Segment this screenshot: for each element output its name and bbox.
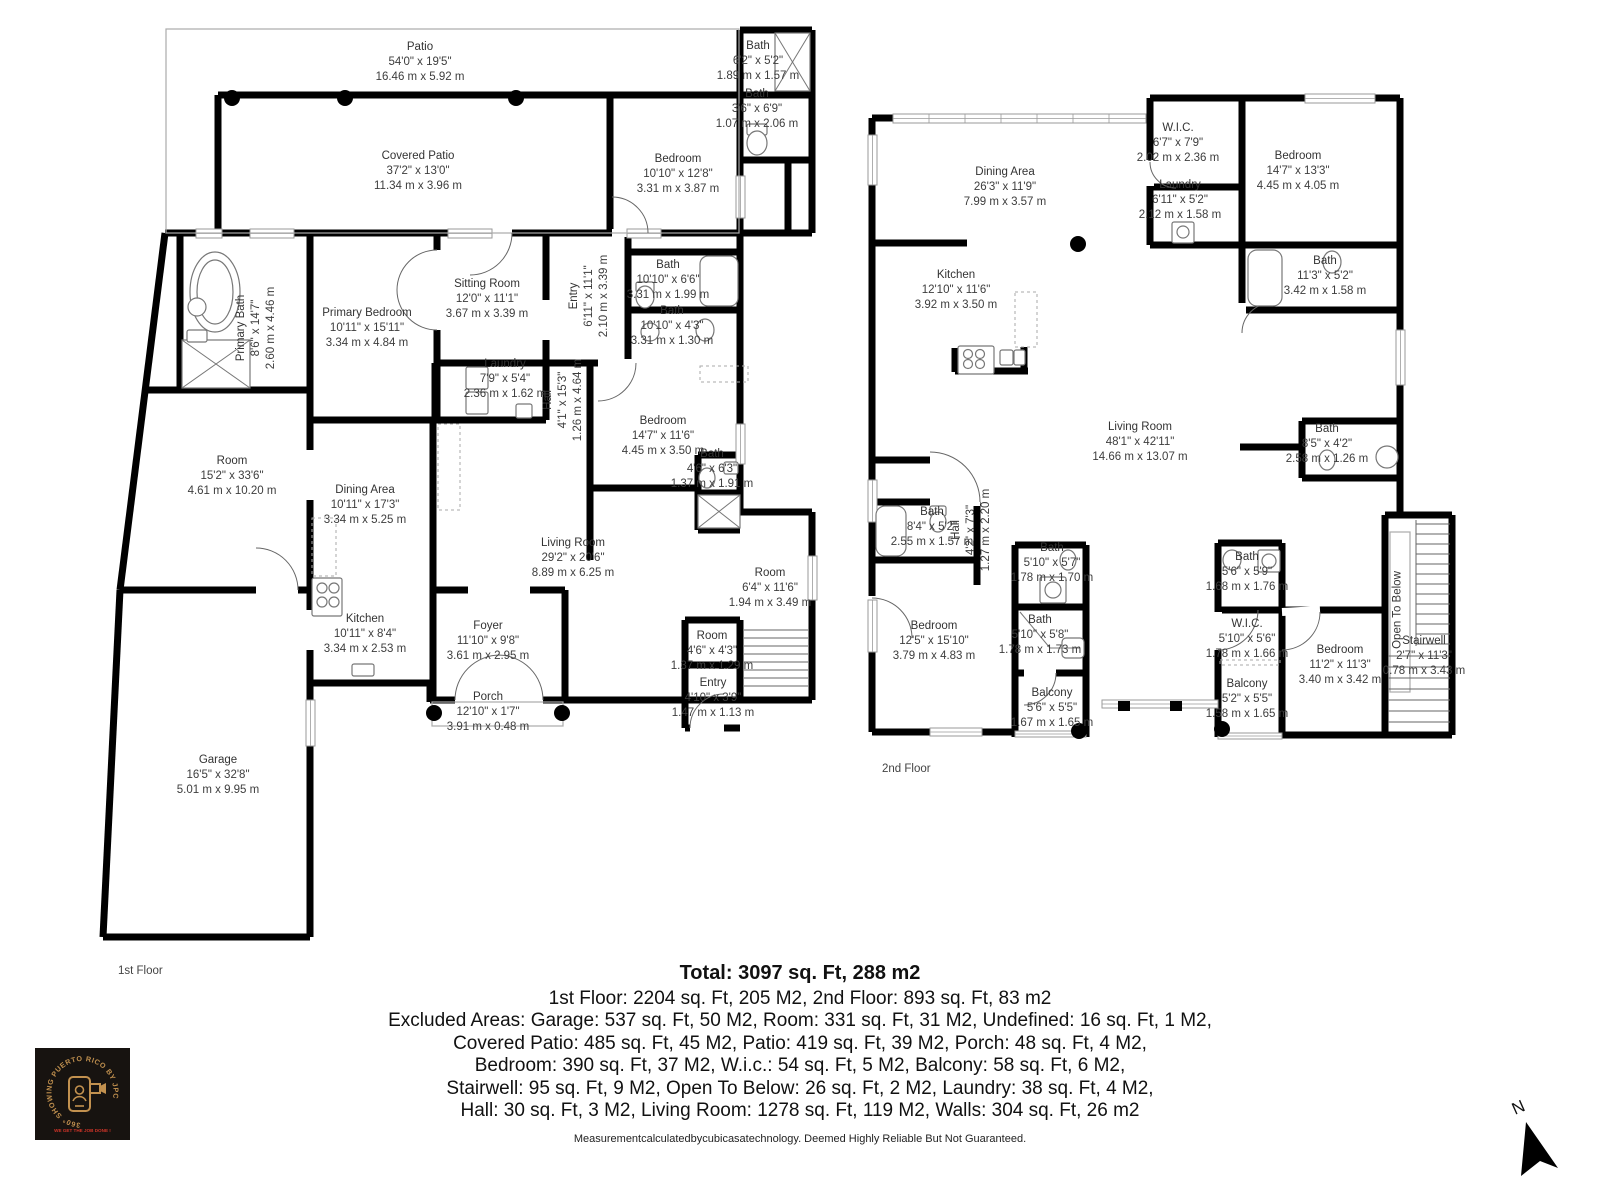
- summary-line: Covered Patio: 485 sq. Ft, 45 M2, Patio:…: [0, 1033, 1600, 1055]
- camera-icon: [90, 1084, 100, 1093]
- person-shoulders-icon: [73, 1097, 86, 1101]
- north-label: N: [1509, 1096, 1528, 1118]
- person-icon: [76, 1086, 84, 1094]
- first-floor-plan: [103, 29, 817, 937]
- summary-line: 1st Floor: 2204 sq. Ft, 205 M2, 2nd Floo…: [0, 988, 1600, 1010]
- summary-line: Excluded Areas: Garage: 537 sq. Ft, 50 M…: [0, 1010, 1600, 1032]
- logo-graphic: 360° SHOWING PUERTO RICO BY JPC WE GET T…: [35, 1048, 130, 1140]
- disclaimer: Measurementcalculatedbycubicasatechnolog…: [0, 1133, 1600, 1145]
- summary-line: Bedroom: 390 sq. Ft, 37 M2, W.i.c.: 54 s…: [0, 1055, 1600, 1077]
- north-arrow-graphic: N: [1485, 1085, 1575, 1195]
- compass-north: N: [1485, 1085, 1575, 1195]
- summary-total: Total: 3097 sq. Ft, 288 m2: [0, 962, 1600, 985]
- company-logo: 360° SHOWING PUERTO RICO BY JPC WE GET T…: [35, 1048, 130, 1140]
- summary-line: Hall: 30 sq. Ft, 3 M2, Living Room: 1278…: [0, 1100, 1600, 1122]
- logo-tagline: WE GET THE JOB DONE !: [54, 1128, 111, 1133]
- summary-line: Stairwell: 95 sq. Ft, 9 M2, Open To Belo…: [0, 1078, 1600, 1100]
- area-summary: Total: 3097 sq. Ft, 288 m2 1st Floor: 22…: [0, 962, 1600, 1145]
- floor2-caption: 2nd Floor: [882, 763, 931, 775]
- floorplan-page: Patio54'0" x 19'5"16.46 m x 5.92 mCovere…: [0, 0, 1600, 1200]
- north-arrow-icon: [1521, 1122, 1558, 1176]
- second-floor-plan: [868, 94, 1452, 739]
